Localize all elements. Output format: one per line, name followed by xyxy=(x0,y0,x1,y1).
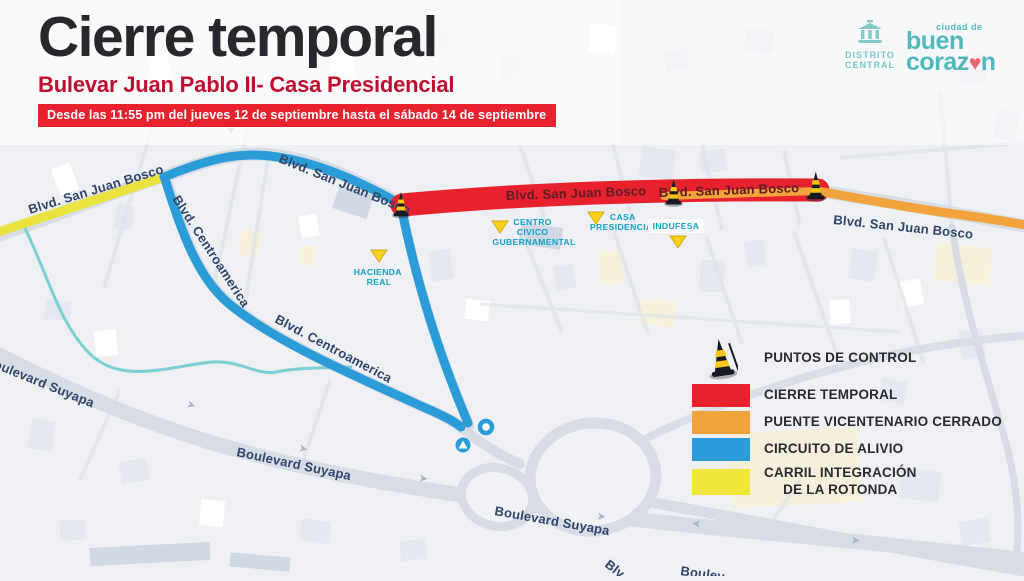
legend-row-circuito: CIRCUITO DE ALIVIO xyxy=(692,438,1002,461)
city-hall-icon xyxy=(856,20,884,44)
page-title: Cierre temporal xyxy=(38,6,556,70)
legend-swatch-yellow xyxy=(692,469,750,495)
legend-label-control-points: PUNTOS DE CONTROL xyxy=(764,350,916,367)
date-banner: Desde las 11:55 pm del jueves 12 de sept… xyxy=(38,104,556,127)
legend: PUNTOS DE CONTROL CIERRE TEMPORAL PUENTE… xyxy=(692,336,1002,503)
circle-marker-icon xyxy=(480,421,492,433)
legend-swatch-blue xyxy=(692,438,750,461)
legend-label-carril: CARRIL INTEGRACIÓN DE LA ROTONDA xyxy=(764,465,917,499)
traffic-cone-icon xyxy=(704,336,738,380)
header: Cierre temporal Bulevar Juan Pablo II- C… xyxy=(38,6,556,127)
legend-row-control-points: PUNTOS DE CONTROL xyxy=(692,336,1002,380)
legend-swatch-red xyxy=(692,384,750,407)
legend-label-puente: PUENTE VICENTENARIO CERRADO xyxy=(764,414,1002,431)
page-subtitle: Bulevar Juan Pablo II- Casa Presidencial xyxy=(38,72,556,98)
legend-label-cierre: CIERRE TEMPORAL xyxy=(764,387,898,404)
heart-icon: ♥ xyxy=(969,52,981,75)
poi-indufesa: INDUFESA xyxy=(653,221,700,231)
legend-label-circuito: CIRCUITO DE ALIVIO xyxy=(764,441,903,458)
district-logo-text: DISTRITO CENTRAL xyxy=(836,50,904,71)
legend-row-puente: PUENTE VICENTENARIO CERRADO xyxy=(692,411,1002,434)
legend-row-cierre: CIERRE TEMPORAL xyxy=(692,384,1002,407)
legend-row-carril: CARRIL INTEGRACIÓN DE LA ROTONDA xyxy=(692,465,1002,499)
city-logo-word2: coraz♥n xyxy=(906,52,996,73)
distrito-central-logo: DISTRITO CENTRAL xyxy=(836,20,904,71)
buen-corazon-logo: ciudad de buen coraz♥n xyxy=(906,24,996,72)
legend-swatch-orange xyxy=(692,411,750,434)
closure-map-poster: Blvd. San Juan Bosco Blvd. San Juan Bosc… xyxy=(0,0,1024,576)
